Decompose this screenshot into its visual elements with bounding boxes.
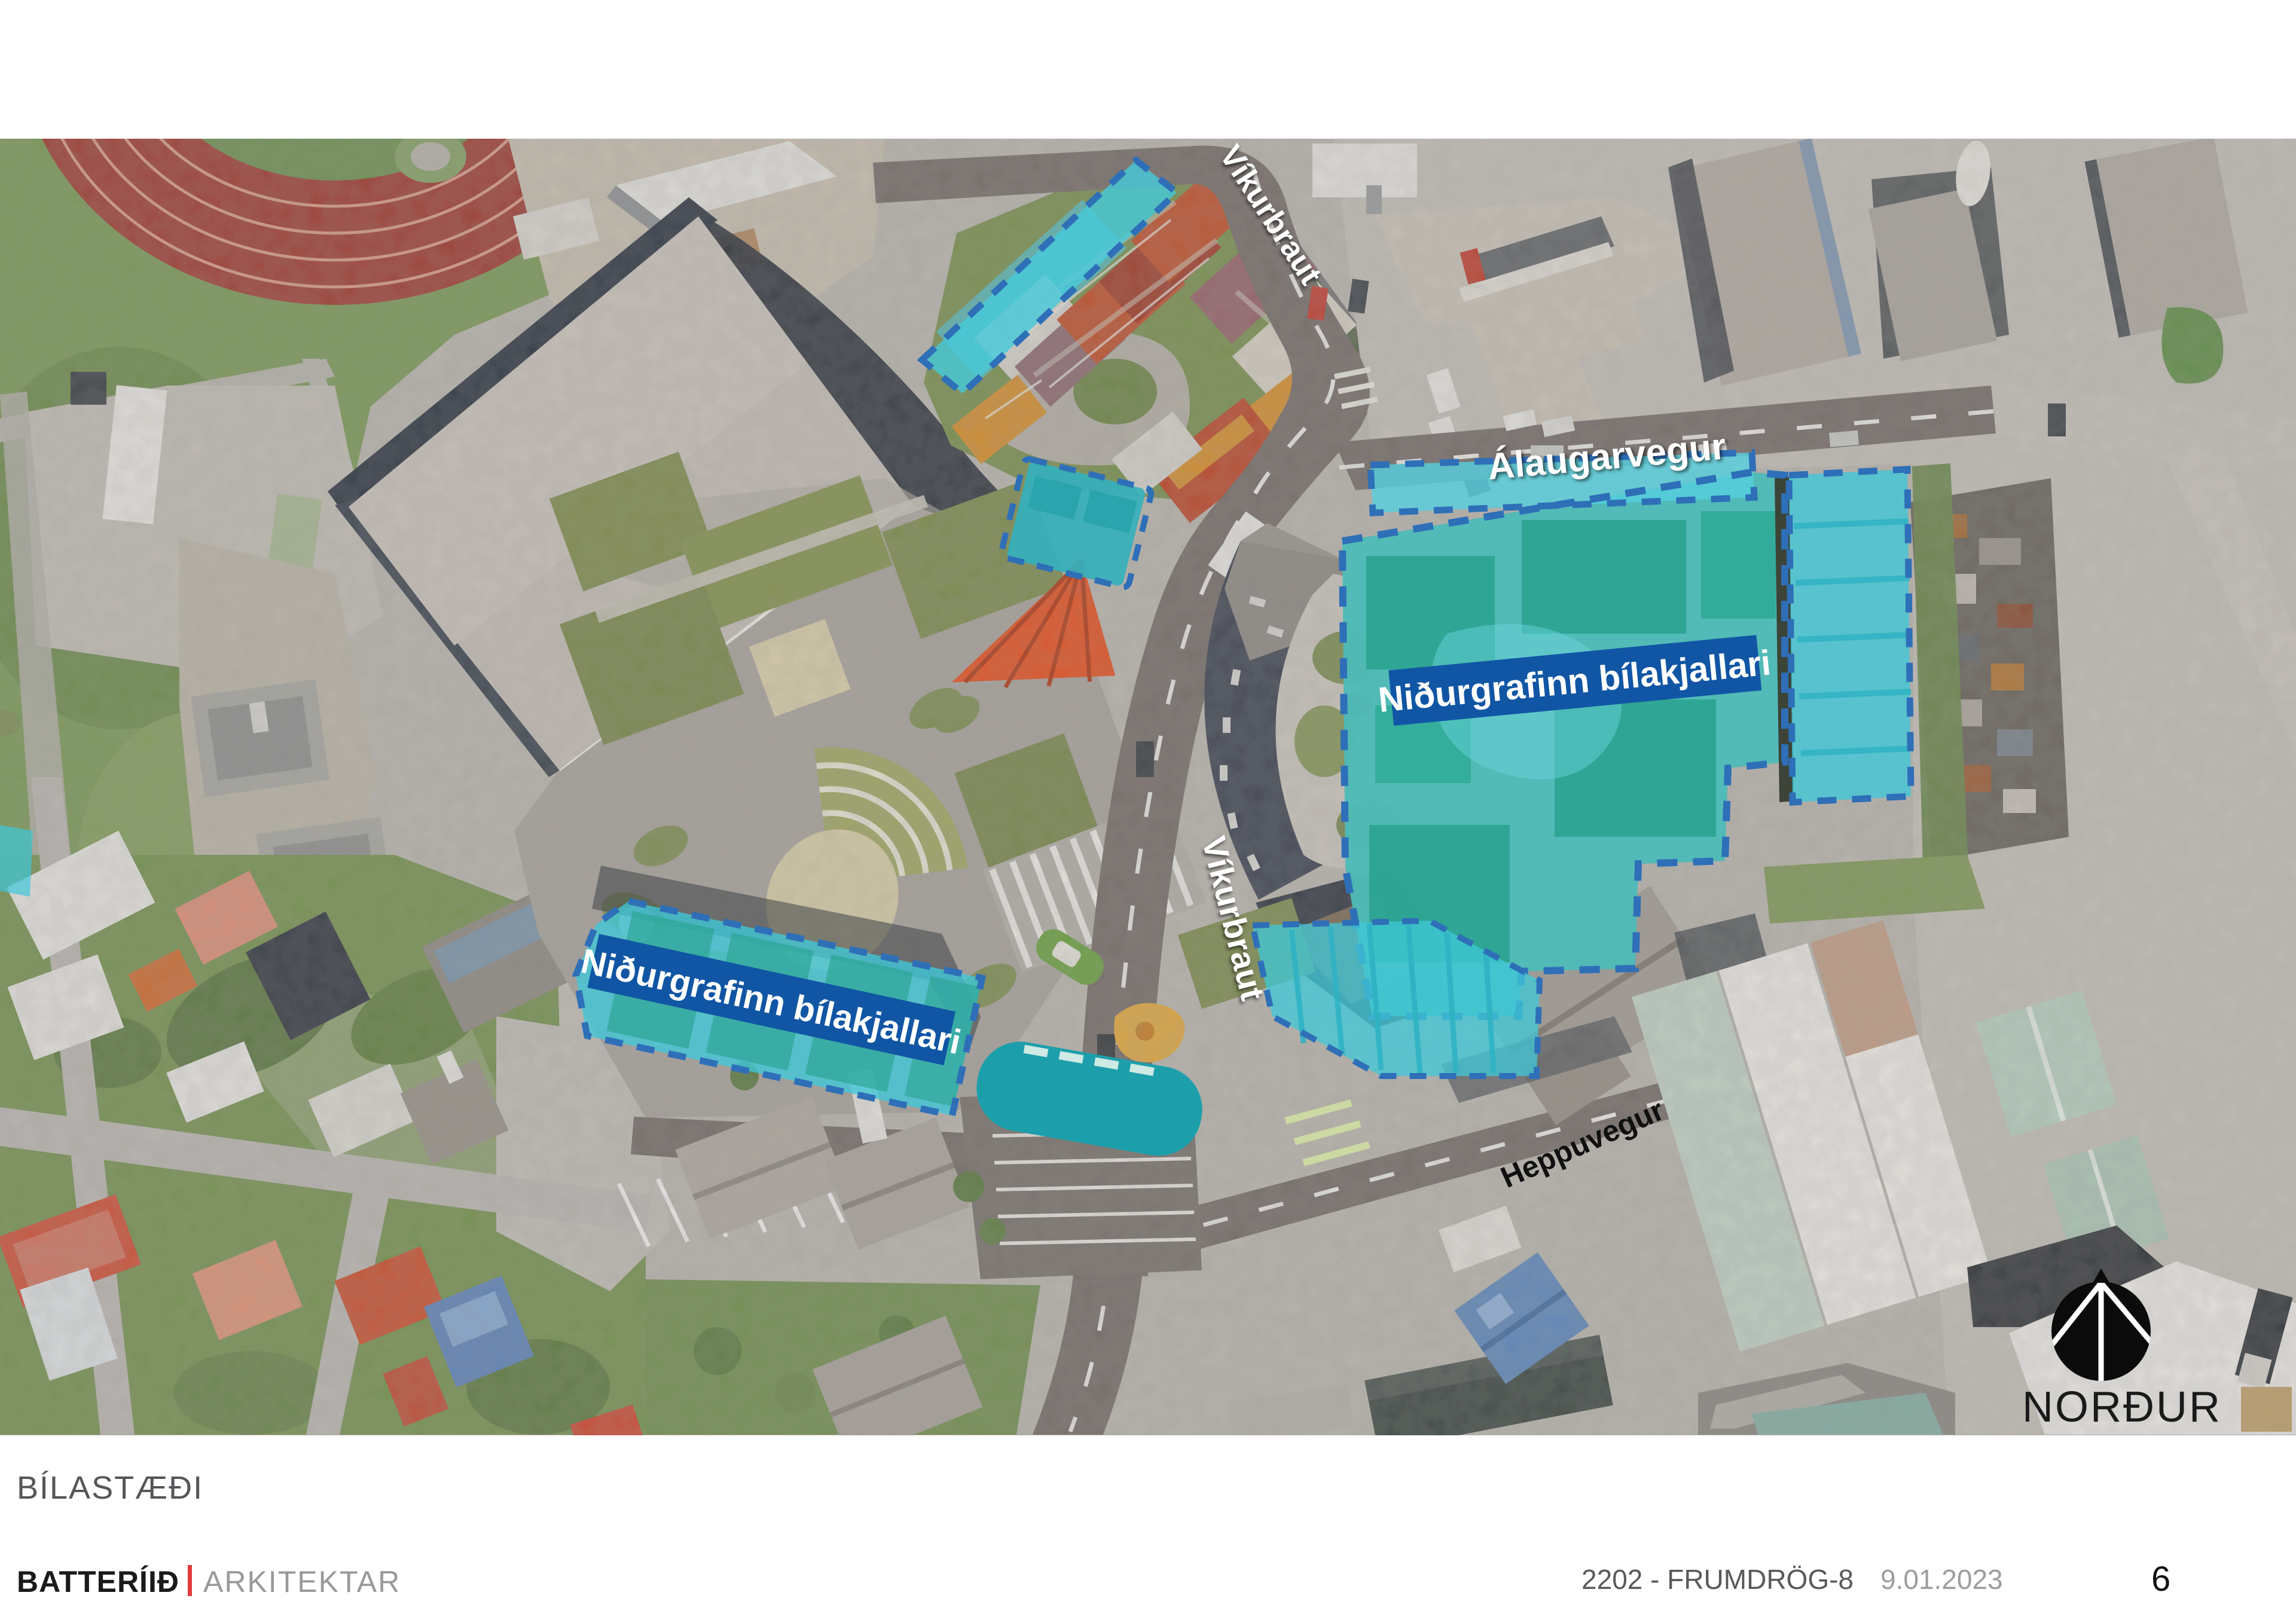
- svg-text:BATTERÍIÐ: BATTERÍIÐ: [17, 1565, 179, 1598]
- svg-text:9.01.2023: 9.01.2023: [1880, 1564, 2003, 1595]
- svg-text:NORÐUR: NORÐUR: [2022, 1383, 2222, 1431]
- svg-text:ARKITEKTAR: ARKITEKTAR: [203, 1565, 401, 1598]
- svg-text:BÍLASTÆÐI: BÍLASTÆÐI: [17, 1470, 203, 1506]
- svg-text:6: 6: [2151, 1560, 2170, 1598]
- svg-text:2202 - FRUMDRÖG-8: 2202 - FRUMDRÖG-8: [1581, 1564, 1854, 1595]
